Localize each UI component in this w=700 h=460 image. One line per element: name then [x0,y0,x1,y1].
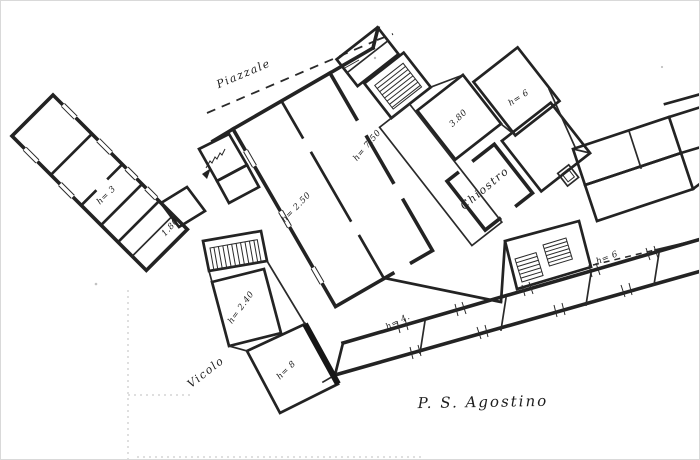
label-h240: h= 2.40 [226,290,256,326]
stair-room-south [505,221,591,289]
cloister-walk [380,104,502,246]
label-380: 3.80 [448,108,470,130]
east-wing [573,94,700,221]
label-piazzale: Piazzale [214,57,273,92]
entrance-arrowhead [202,168,211,179]
h4-room-walls [384,242,505,302]
label-h8: h= 8 [275,359,298,382]
floor-plan-scan: Piazzale h= 7.50 h= 2.50 3.80 h= 6 Chios… [0,0,700,460]
label-chiostro: Chiostro [458,164,512,212]
plan-title: P. S. Agostino [416,392,548,412]
wing-northwest [10,93,188,271]
room-h6-top [473,47,559,135]
staircase-south-1 [515,253,543,282]
staircase-south-2 [543,238,572,266]
label-h6-top: h= 6 [507,88,532,109]
floor-plan-drawing: Piazzale h= 7.50 h= 2.50 3.80 h= 6 Chios… [1,1,700,460]
scan-artifacts [95,57,663,459]
thick-wall [305,324,338,384]
label-h3: h= 3 [95,184,118,207]
label-vicolo: Vicolo [185,354,227,391]
southwest-wing [203,231,338,413]
label-h250: h= 2.50 [280,191,313,225]
staircase-main-hatch [210,240,261,270]
south-wing [335,239,700,375]
cloister-block [330,1,603,255]
